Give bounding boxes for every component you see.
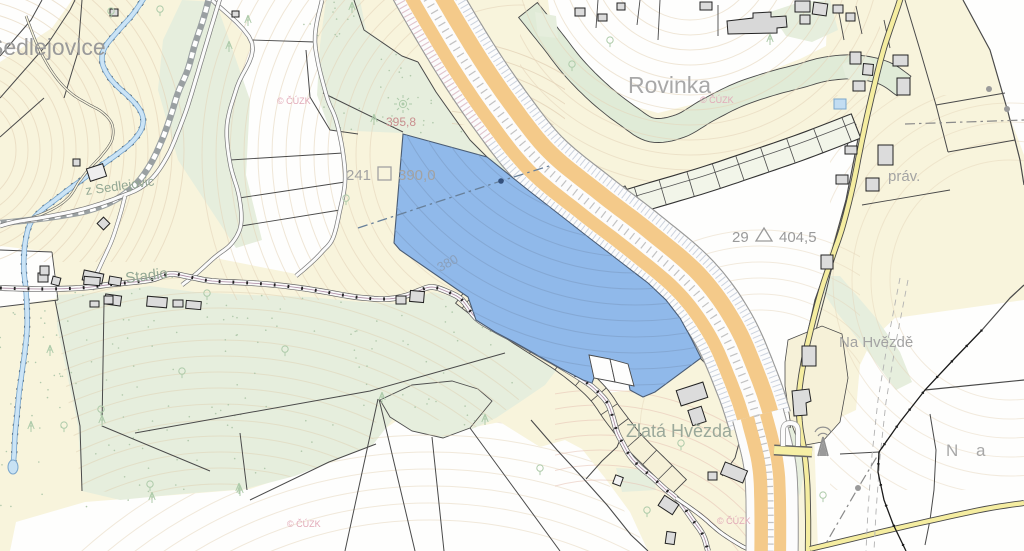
svg-text:395,8: 395,8 (386, 115, 416, 129)
svg-text:© ČÚZK: © ČÚZK (287, 519, 321, 529)
svg-text:© ČÚZK: © ČÚZK (700, 95, 734, 105)
svg-text:práv.: práv. (888, 168, 920, 185)
svg-text:© ČÚZK: © ČÚZK (717, 516, 751, 526)
svg-text:241: 241 (346, 167, 371, 184)
svg-text:Zlatá Hvězda: Zlatá Hvězda (626, 421, 733, 441)
svg-text:Rovinka: Rovinka (628, 72, 711, 98)
svg-text:© ČÚZK: © ČÚZK (277, 96, 311, 106)
svg-text:a: a (976, 441, 986, 460)
svg-text:Na Hvězdě: Na Hvězdě (839, 334, 913, 351)
svg-text:Sedlejovice: Sedlejovice (0, 34, 106, 60)
svg-text:N: N (946, 441, 958, 460)
svg-text:29: 29 (732, 229, 749, 246)
svg-text:390,0: 390,0 (398, 167, 436, 184)
svg-text:404,5: 404,5 (779, 229, 817, 246)
